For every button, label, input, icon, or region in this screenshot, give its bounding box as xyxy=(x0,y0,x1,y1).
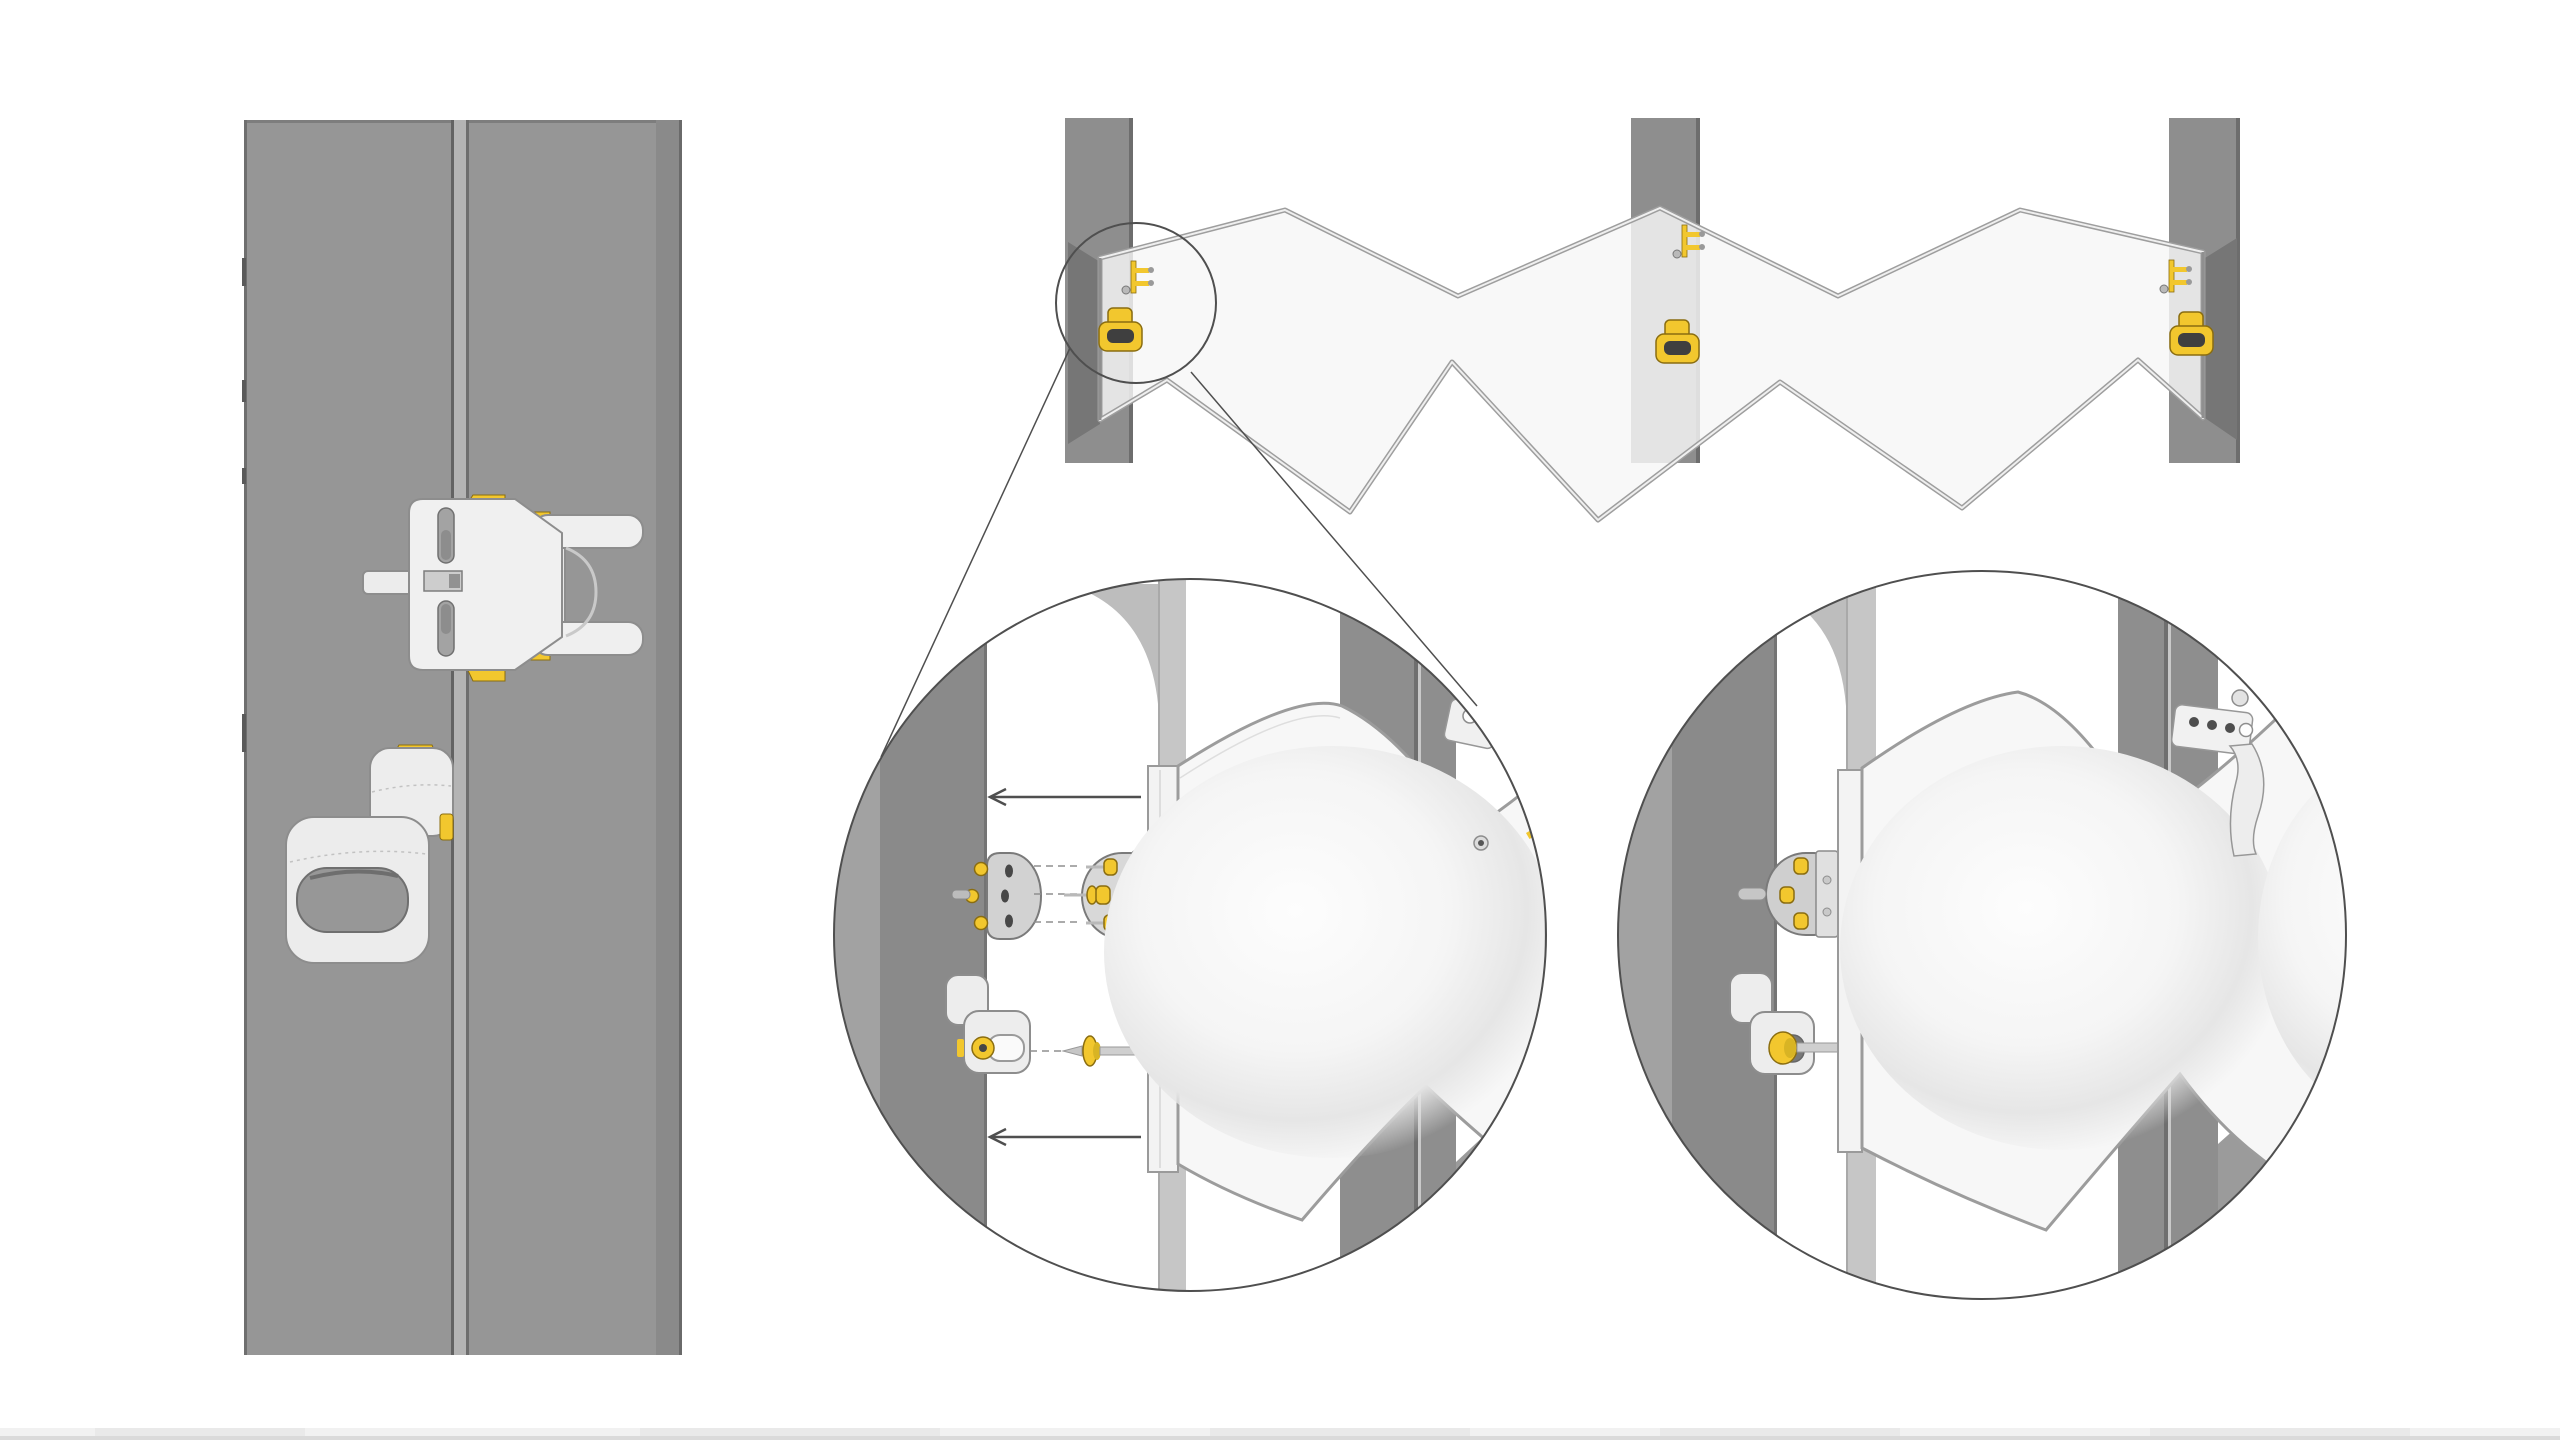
dblock-flange-hole xyxy=(1823,908,1831,916)
panel-clip-slot xyxy=(2178,333,2205,347)
screw-glyph-prong xyxy=(1134,281,1149,286)
far-knob-dot xyxy=(1478,840,1484,846)
dblock-screw-head xyxy=(975,863,988,876)
bracket-center-notch-inner xyxy=(449,574,460,588)
floor-strip-bottom-edge xyxy=(0,1436,2560,1440)
dblock-screw-head xyxy=(1794,858,1808,874)
screw-glyph-prong xyxy=(1685,232,1700,237)
plan-post-1-recess xyxy=(1068,242,1100,444)
dblock-screw-head xyxy=(975,917,988,930)
screw-glyph-head xyxy=(2160,285,2168,293)
bracket-side-tab xyxy=(363,571,413,594)
floor-strip-segment xyxy=(640,1428,940,1436)
panel-plan-view xyxy=(1065,118,2240,520)
post-edge-tick xyxy=(242,380,246,402)
screw-glyph-bar xyxy=(2169,260,2174,292)
screw-glyph-prong xyxy=(1685,245,1700,250)
panel-clip-slot xyxy=(1664,341,1691,355)
screw-glyph-bar xyxy=(1682,225,1687,257)
magnified-post-strip-edge xyxy=(1774,571,1777,1299)
screw-glyph-tip xyxy=(1699,244,1705,250)
screw-glyph-tip xyxy=(1699,231,1705,237)
floor-strip-segment xyxy=(2150,1428,2410,1436)
screw-glyph-head xyxy=(1122,286,1130,294)
dblock-hole xyxy=(1005,915,1013,928)
dblock-hole xyxy=(1005,865,1013,878)
magnified-post-strip-dark xyxy=(880,579,986,1291)
magnified-post-strip-light xyxy=(1614,571,1672,1299)
post-right-edge xyxy=(679,120,682,1355)
hook-yellow-sliver xyxy=(957,1039,964,1057)
floor-strip-group xyxy=(0,1428,2560,1440)
panel-dome-highlight xyxy=(1104,746,1560,1158)
screw-glyph-prong xyxy=(2172,280,2187,285)
post-edge-tick xyxy=(242,468,246,484)
screw-glyph-tip xyxy=(2186,279,2192,285)
panel-screw-head xyxy=(1104,859,1117,875)
far-bracket-hole-dot xyxy=(2207,720,2217,730)
panel-clip-slot xyxy=(1107,329,1134,343)
magnified-post-strip-dark xyxy=(1672,571,1776,1299)
plan-panel-outline xyxy=(1100,208,2203,520)
hook-yellow-right xyxy=(440,814,453,840)
dblock-screw-head xyxy=(1780,887,1794,903)
screw-glyph-prong xyxy=(1134,268,1149,273)
thumbscrew-knob-inner xyxy=(1784,1038,1796,1058)
dblock-pin xyxy=(1738,888,1766,900)
post-edge-tick xyxy=(242,258,246,286)
panel-dome-highlight xyxy=(1840,746,2284,1150)
assembly-diagram-svg xyxy=(0,0,2560,1440)
screw-glyph-tip xyxy=(1148,267,1154,273)
post-seam-highlight xyxy=(454,120,466,1355)
post-front-view xyxy=(242,120,682,1355)
screw-glyph-tip xyxy=(1148,280,1154,286)
dblock-pin xyxy=(952,890,970,899)
dblock-screw-head xyxy=(1794,913,1808,929)
post-seam-shadow xyxy=(451,120,454,1355)
bracket-slot-top-inner xyxy=(441,530,451,560)
illustration-canvas xyxy=(0,0,2560,1440)
floor-strip-segment xyxy=(1660,1428,1900,1436)
far-bracket-hole-dot xyxy=(2225,723,2235,733)
far-bracket-hole-dot xyxy=(1485,718,1493,726)
far-knob xyxy=(2232,690,2248,706)
hook-grommet-center xyxy=(979,1044,987,1052)
screw-glyph-head xyxy=(1673,250,1681,258)
magnified-post-strip-edge xyxy=(984,579,987,1291)
floor-strip-segment xyxy=(1210,1428,1470,1436)
far-bracket-hole-dot xyxy=(2189,717,2199,727)
dblock-flange xyxy=(1816,851,1838,937)
bracket-slot-bottom-inner xyxy=(441,604,451,634)
post-edge-tick xyxy=(242,714,246,752)
screw-glyph-bar xyxy=(1131,261,1136,293)
panel-screw-head xyxy=(1096,886,1110,904)
far-bracket-hole-ring xyxy=(2240,724,2253,737)
screw-glyph-tip xyxy=(2186,266,2192,272)
post-right-shade xyxy=(656,120,682,1355)
screw-glyph-prong xyxy=(2172,267,2187,272)
floor-strip-segment xyxy=(95,1428,305,1436)
post-seam-shadow-right xyxy=(466,120,469,1355)
magnified-post-strip-light xyxy=(834,579,880,1291)
dblock-post-side xyxy=(987,853,1041,939)
dblock-flange-hole xyxy=(1823,876,1831,884)
thumbscrew-rod xyxy=(1797,1043,1839,1052)
dblock-hole xyxy=(1001,890,1009,903)
